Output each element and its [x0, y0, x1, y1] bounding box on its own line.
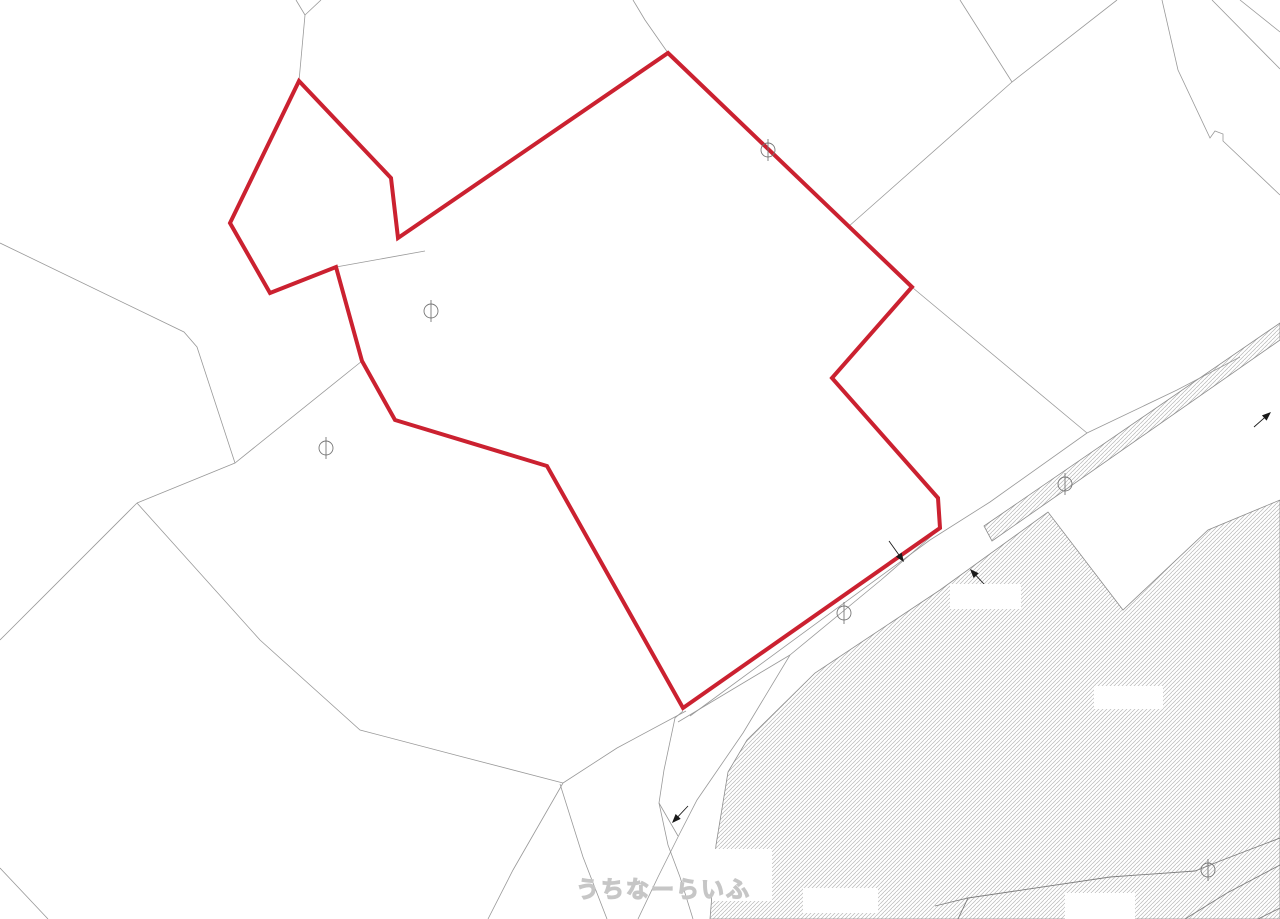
- parcel-boundary-line: [1212, 0, 1280, 69]
- parcel-boundary-line: [678, 655, 790, 722]
- parcel-boundary-line: [913, 288, 1087, 433]
- parcel-boundary-line: [305, 0, 321, 15]
- cadastral-map-viewport[interactable]: うちなーらいふ: [0, 0, 1280, 919]
- redaction-box: [950, 584, 1021, 609]
- redaction-box: [175, 907, 263, 919]
- parcel-boundary-line: [563, 711, 686, 783]
- hatched-road-area-layer: [710, 323, 1280, 919]
- redaction-box: [803, 888, 878, 913]
- survey-marker-icon: [424, 300, 438, 322]
- survey-marker-icon: [319, 437, 333, 459]
- pointer-arrow-icon: [672, 806, 688, 823]
- redaction-box: [1065, 893, 1135, 919]
- parcel-boundary-line: [848, 0, 1117, 227]
- subject-parcel-layer: [230, 53, 940, 708]
- survey-marker-icon: [837, 602, 851, 624]
- hatched-area: [984, 323, 1280, 541]
- parcel-boundary-line: [488, 783, 563, 919]
- subject-parcel-outline: [230, 53, 940, 708]
- parcel-boundary-line: [0, 868, 48, 919]
- parcel-boundary-line: [296, 0, 305, 81]
- parcel-boundary-line: [137, 503, 563, 783]
- parcel-boundary-line: [0, 243, 235, 463]
- parcel-boundary-line: [960, 0, 1012, 82]
- parcel-boundary-line: [336, 251, 425, 267]
- pointer-arrow-icon: [1254, 412, 1271, 427]
- hatched-area: [710, 500, 1280, 919]
- parcel-boundary-line: [633, 0, 668, 53]
- parcel-boundary-line: [1240, 0, 1280, 32]
- parcel-boundary-line: [137, 361, 362, 503]
- parcel-boundary-line: [1162, 0, 1280, 195]
- parcel-boundary-line: [0, 503, 137, 640]
- redaction-box: [1094, 686, 1163, 709]
- watermark-text: うちなーらいふ: [576, 870, 751, 904]
- cadastral-map-canvas[interactable]: [0, 0, 1280, 919]
